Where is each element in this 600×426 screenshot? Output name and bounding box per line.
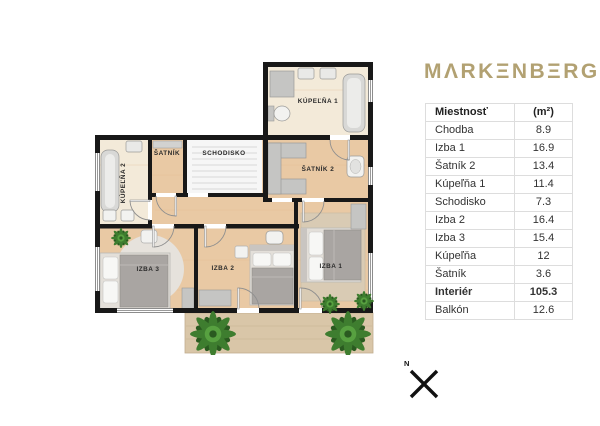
- table-row: Balkón 12.6: [426, 302, 573, 320]
- label-izba3: IZBA 3: [136, 266, 159, 273]
- plant-izba1-corner: [354, 291, 374, 311]
- toilet-2: [121, 210, 134, 221]
- plant-izba1-left: [320, 294, 340, 314]
- label-kupelna1: KÚPEĽŇA 1: [298, 96, 338, 105]
- plant-izba3: [111, 228, 131, 248]
- room-area-table: Miestnosť (m²) Chodba 8.9 Izba 1 16.9 Ša…: [425, 103, 573, 320]
- label-izba1: IZBA 1: [319, 263, 342, 270]
- compass: N: [398, 358, 450, 404]
- bed-izba3: [100, 253, 170, 309]
- label-izba2: IZBA 2: [211, 265, 234, 272]
- header-area: (m²): [515, 104, 573, 122]
- header-room: Miestnosť: [426, 104, 515, 122]
- table-row: Schodisko 7.3: [426, 194, 573, 212]
- label-kupelna2: KÚPEĽŇA 2: [118, 163, 127, 203]
- floor-plan: KÚPEĽŇA 1 KÚPEĽŇA 2 ŠATNÍK SCHODISKO ŠAT…: [80, 55, 380, 355]
- bed-izba1: [301, 228, 361, 282]
- table-row: Chodba 8.9: [426, 122, 573, 140]
- table-row: Šatník 3.6: [426, 266, 573, 284]
- table-header-row: Miestnosť (m²): [426, 104, 573, 122]
- brand-logo: MΛRKΞNBΞRG: [424, 60, 600, 84]
- label-satnik: ŠATNÍK: [154, 148, 180, 157]
- table-row: Kúpeľňa 12: [426, 248, 573, 266]
- table-row-total: Interiér 105.3: [426, 284, 573, 302]
- table-row: Izba 1 16.9: [426, 140, 573, 158]
- table-row: Izba 3 15.4: [426, 230, 573, 248]
- table-row: Izba 2 16.4: [426, 212, 573, 230]
- compass-x-icon: [407, 368, 441, 400]
- compass-north-label: N: [404, 359, 409, 368]
- table-row: Kúpeľňa 1 11.4: [426, 176, 573, 194]
- label-schodisko: SCHODISKO: [202, 150, 245, 157]
- toilet-1: [274, 106, 290, 121]
- floor-plan-drawing: KÚPEĽŇA 1 KÚPEĽŇA 2 ŠATNÍK SCHODISKO ŠAT…: [80, 55, 380, 355]
- label-satnik2: ŠATNÍK 2: [302, 164, 335, 173]
- page: KÚPEĽŇA 1 KÚPEĽŇA 2 ŠATNÍK SCHODISKO ŠAT…: [0, 0, 600, 426]
- table-row: Šatník 2 13.4: [426, 158, 573, 176]
- bed-izba2: [250, 245, 294, 305]
